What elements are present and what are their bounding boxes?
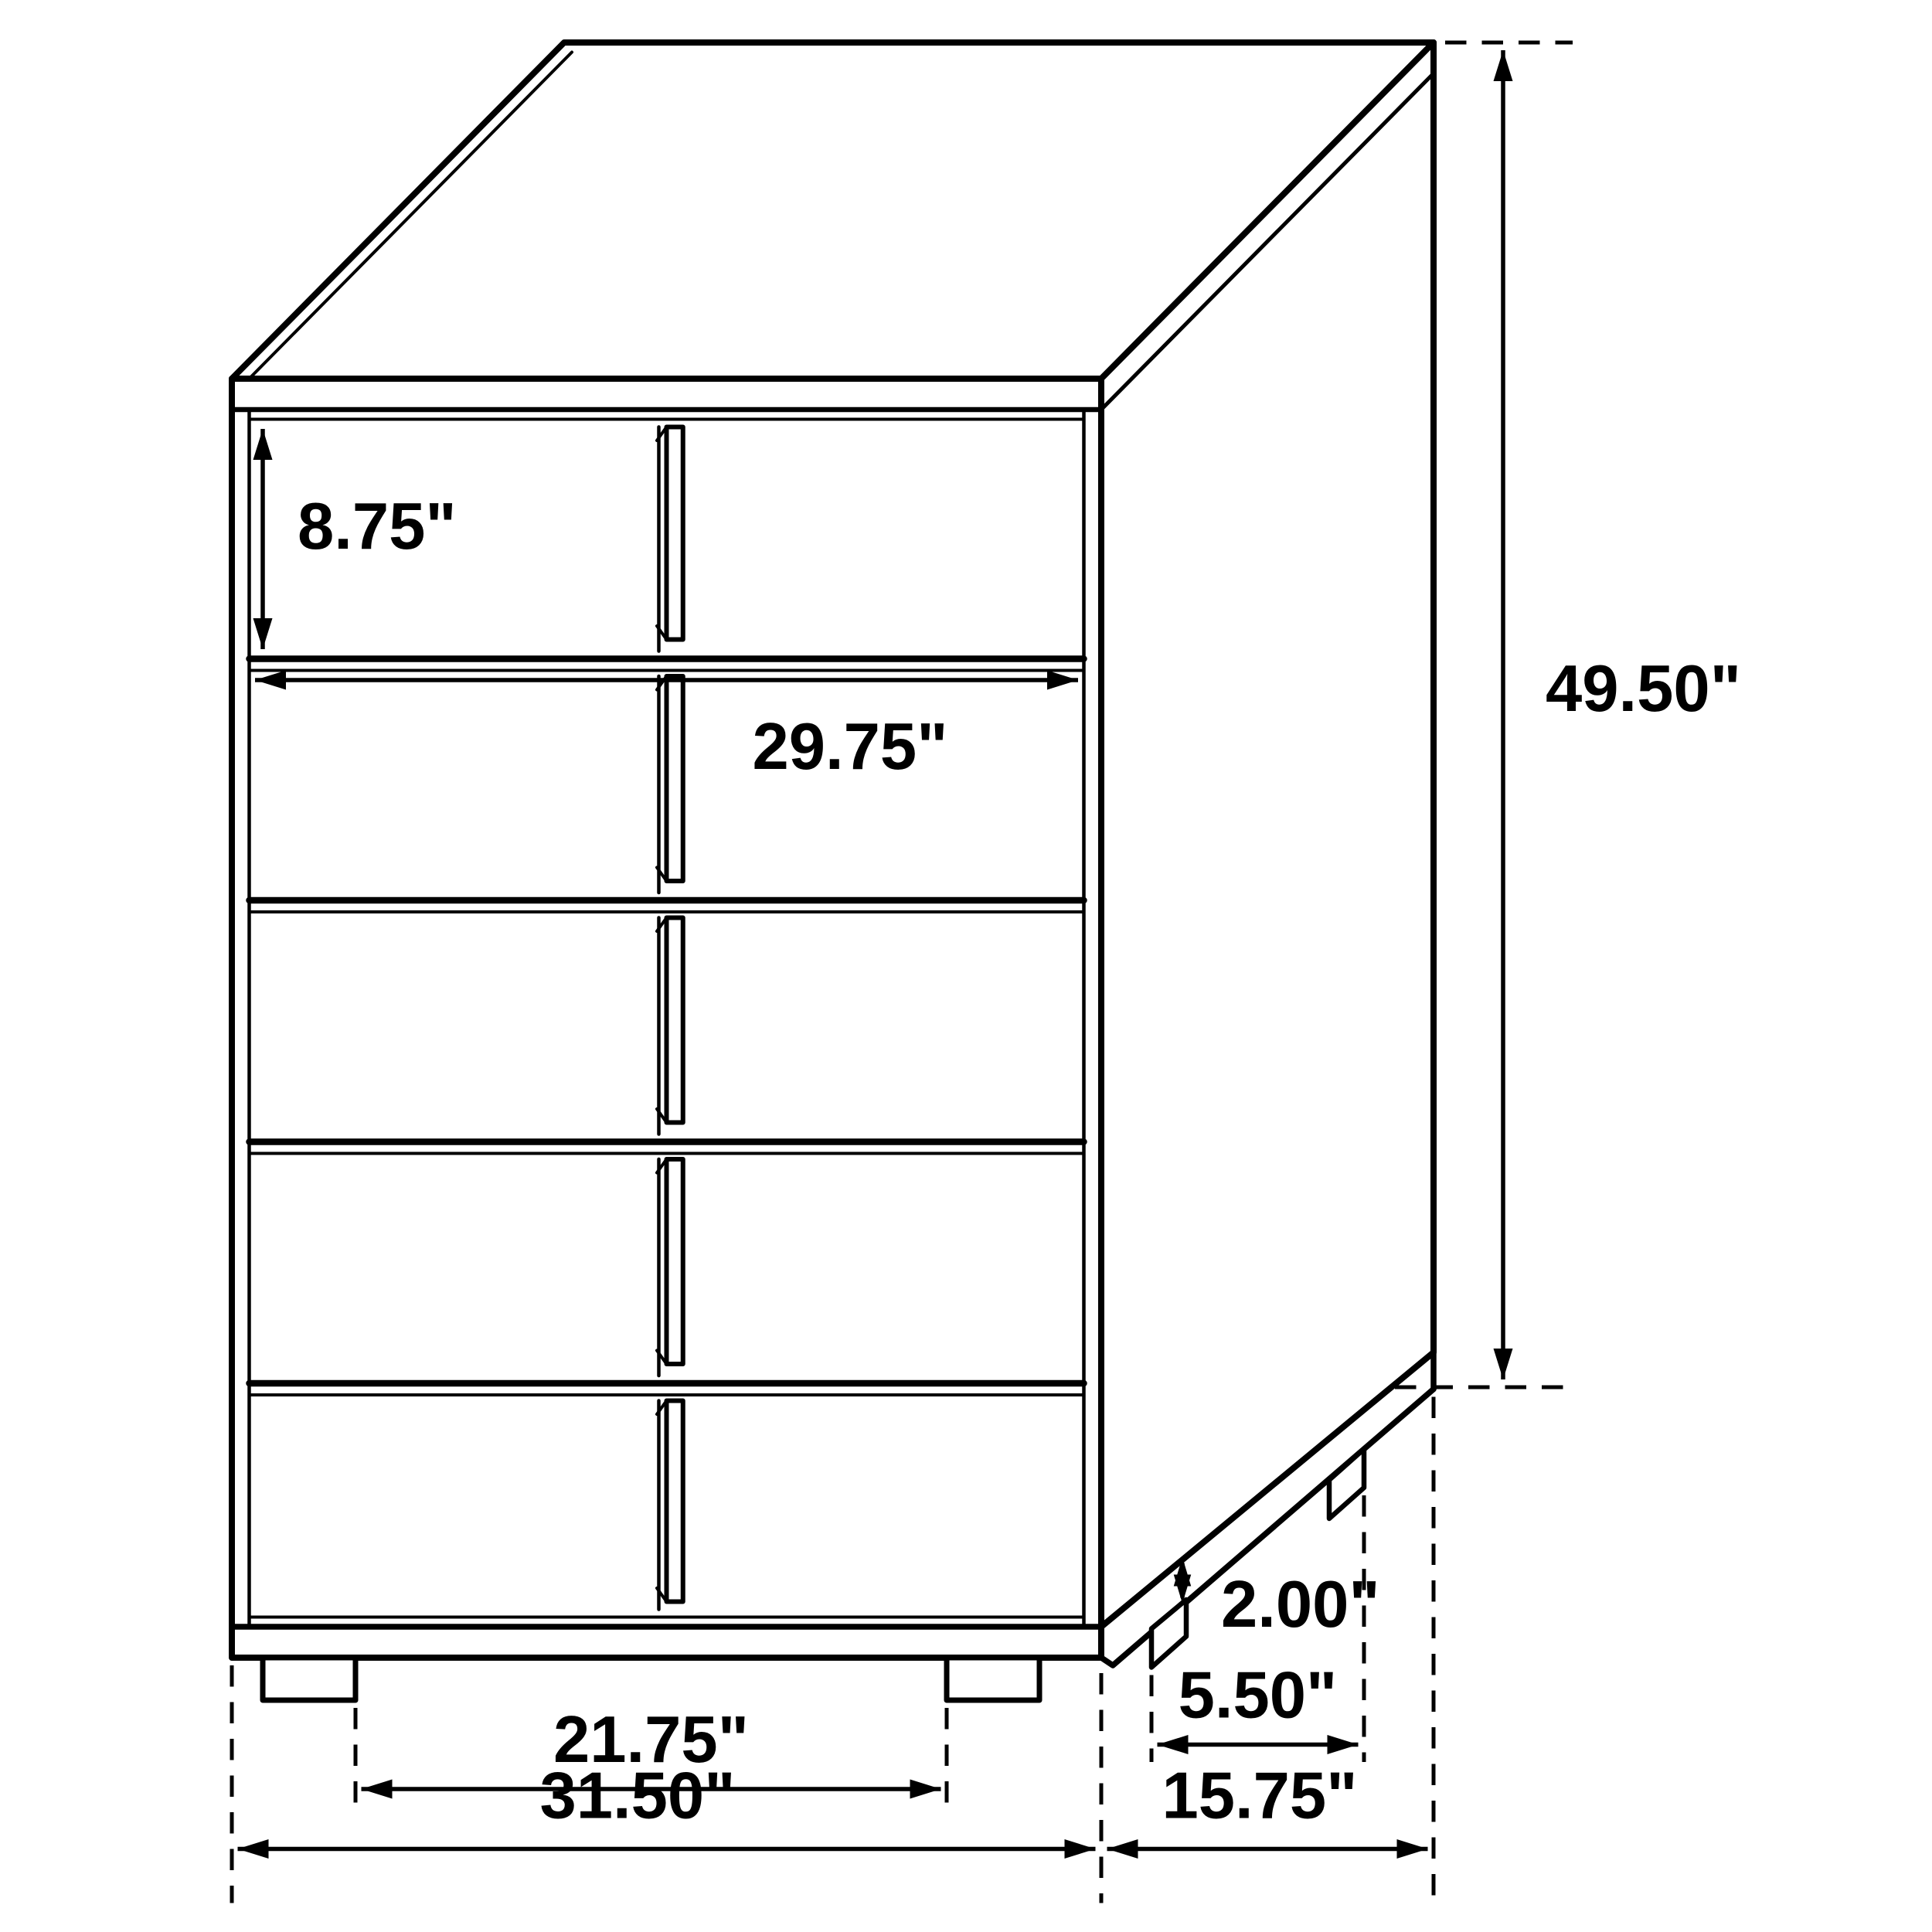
front-face xyxy=(232,379,1101,1700)
drawer-handle xyxy=(667,918,683,1123)
label-drawer-width: 29.75" xyxy=(752,710,947,784)
label-overall-depth: 15.75" xyxy=(1162,1760,1357,1833)
front-left-leg xyxy=(263,1658,355,1700)
chest-outline xyxy=(232,43,1434,1700)
label-base-height: 2.00" xyxy=(1221,1568,1380,1641)
label-overall-height: 49.50" xyxy=(1546,652,1741,726)
label-overall-width: 31.50" xyxy=(539,1760,735,1833)
drawer-handle xyxy=(667,427,683,640)
dimension-drawing: 8.75" 29.75" 49.50" 2.00" 5.50" 21.75" 3… xyxy=(0,0,1932,1932)
drawer-handle xyxy=(667,1159,683,1364)
drawer-handle xyxy=(667,676,683,881)
label-top-drawer-height: 8.75" xyxy=(298,490,457,563)
drawing-canvas: 8.75" 29.75" 49.50" 2.00" 5.50" 21.75" 3… xyxy=(0,0,1932,1932)
side-front-leg xyxy=(1151,1600,1186,1668)
front-right-leg xyxy=(947,1658,1039,1700)
label-side-leg-spacing: 5.50" xyxy=(1179,1659,1338,1733)
side-back-leg xyxy=(1329,1449,1364,1519)
drawer-handle xyxy=(667,1401,683,1602)
